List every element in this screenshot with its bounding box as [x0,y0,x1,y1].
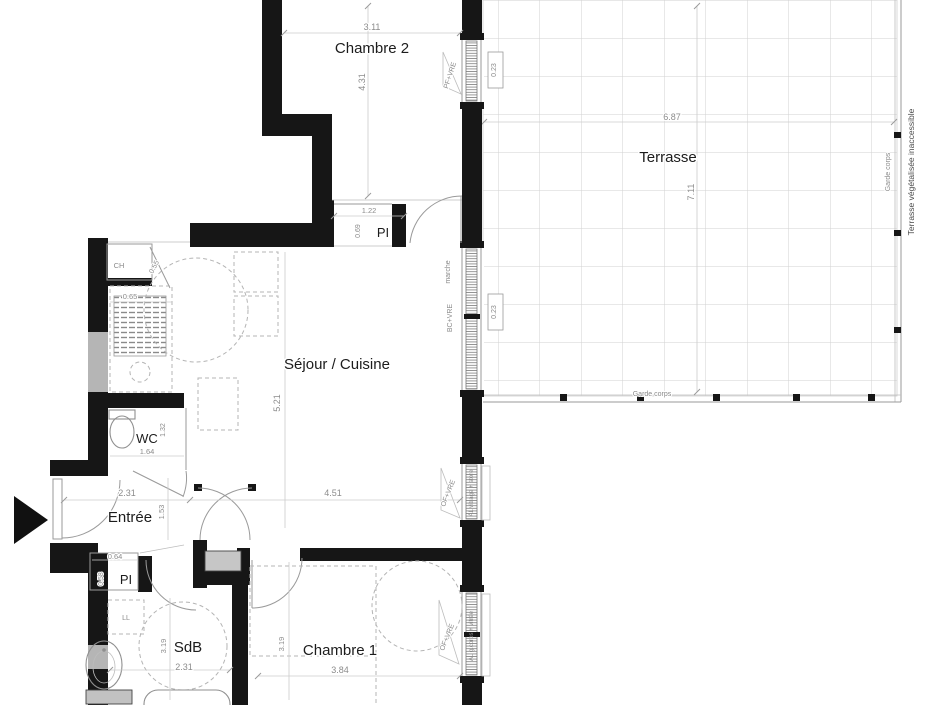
dim-wc-width: 1.64 [140,447,155,456]
railing-bottom-label: Garde corps [633,391,672,398]
door-leaf-wc [133,471,183,496]
window-cap [460,585,484,592]
room-label-chambre1: Chambre 1 [303,642,377,659]
step-label: marche [445,260,452,283]
window-sill-note-1: AL vitrage + store [469,469,475,517]
dim-closet-depth: 0.69 [355,224,362,238]
bay-window-sejour [460,241,484,397]
technical-duct [86,690,132,704]
wall [232,560,248,705]
window-sill-note-2: AL g.corps + vitrée [469,610,475,661]
window-cap [460,102,484,109]
faucet [102,648,106,652]
closet-label: PI [120,572,132,587]
wall [138,556,152,592]
dim-sdb-width: 2.31 [175,662,193,672]
kitchen-sink [130,362,150,382]
chair [234,252,278,292]
railing-post [894,327,901,333]
dim-chambre1-width: 3.84 [331,665,349,675]
wall [392,204,406,247]
window-cap [460,390,484,397]
chair [234,296,278,336]
dim-sejour-height: 5.21 [272,394,282,412]
room-label-terrasse: Terrasse [639,149,697,166]
room-label-entree: Entrée [108,509,152,526]
dim-terrasse-width: 6.87 [663,112,681,122]
railing-post [894,132,901,138]
dim-chambre2-height: 4.31 [357,73,367,91]
dim-wc-height: 1.32 [160,423,167,437]
wall [88,278,152,286]
closet-label-ch: CH [114,261,125,270]
railing-post [793,394,800,401]
dim-sdb-height: 3.19 [159,639,168,654]
railing-post [560,394,567,401]
wall [88,553,108,645]
kitchen-stove [114,296,166,356]
fixtures [86,252,462,705]
window-cap [460,33,484,40]
entry-door-leaf [53,479,62,539]
railing-post [713,394,720,401]
window-cap [460,520,484,527]
window-label-bc-vre: BC+VRE [447,304,454,333]
door-arc-chambre2 [410,196,462,243]
dim-sejour-width: 4.51 [324,488,342,498]
window-cap [460,457,484,464]
wall [50,460,98,476]
dim-closet-width: 1.22 [362,206,377,215]
dim-entree-height: 1.53 [157,505,166,520]
dim-closet2-width: 0.64 [108,552,123,561]
furniture [198,378,238,430]
window-cap [460,676,484,683]
wall [300,548,462,561]
threshold-dim: 0.23 [491,63,498,77]
railing-post [868,394,875,401]
wall [88,393,184,408]
railing-post [894,230,901,236]
room-label-sejour: Séjour / Cuisine [284,356,390,373]
door-arc-wc [183,471,187,497]
washer-label: LL [122,615,130,622]
floor-plan-svg: 0.23 0.23 Chambre 2 3.11 4.31 1.22 PI 0.… [0,0,940,705]
railing-right-label: Garde corps [885,152,892,191]
window-glazing [466,41,477,101]
dim-closet2-depth: 0.58 [98,572,105,586]
dim-ch-width: 0.65 [123,292,138,301]
dim-entree-width: 2.31 [118,488,136,498]
terrace-note: Terrasse végétalisée inaccessible [906,108,916,235]
room-label-wc: WC [136,431,158,446]
window-cap [460,241,484,248]
dim-chambre1-height: 3.19 [277,637,286,652]
window-label-pf-vre: PF+VRE [443,61,458,90]
wall [262,0,282,122]
room-label-chambre2: Chambre 2 [335,40,409,57]
floor-plan: 0.23 0.23 Chambre 2 3.11 4.31 1.22 PI 0.… [0,0,940,705]
wall-insulation [88,332,108,392]
toilet-bowl [110,416,134,448]
bathtub [144,690,230,705]
wall [312,114,332,214]
entrance-arrow [14,496,48,544]
closet-door-diagonal [140,545,184,553]
wall [190,223,332,247]
dim-terrasse-height: 7.11 [686,184,696,201]
technical-duct [205,551,241,571]
toilet-tank [109,410,135,419]
room-label-sdb: SdB [174,639,202,656]
threshold-dim: 0.23 [491,305,498,319]
window-mullion [464,314,480,319]
dim-chambre2-width: 3.11 [364,22,381,32]
closet-label: PI [377,225,389,240]
